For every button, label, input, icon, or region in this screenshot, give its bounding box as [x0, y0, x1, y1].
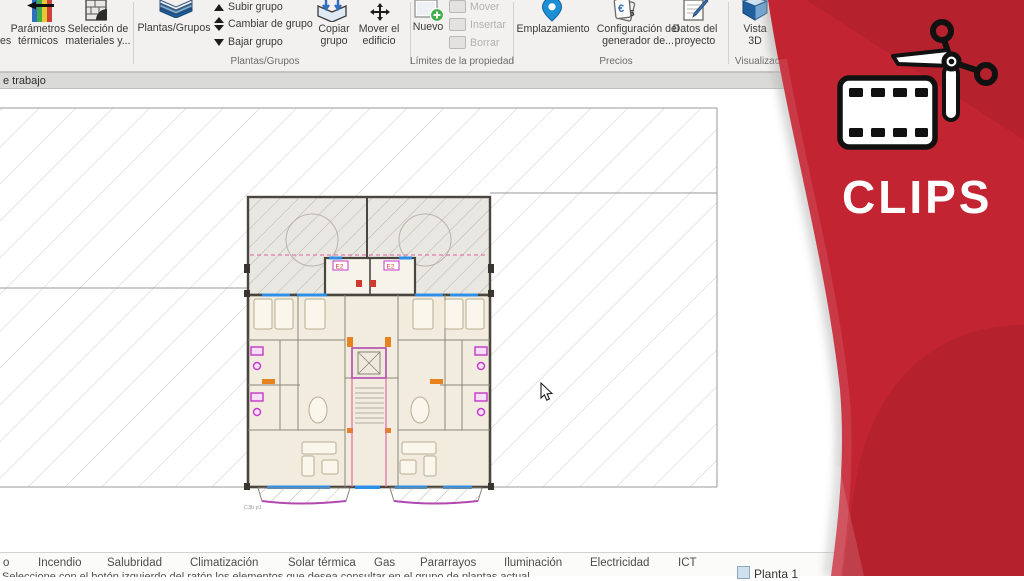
- copiar-grupo-label: Copiar grupo: [314, 24, 354, 47]
- ribbon-separator: [728, 2, 729, 64]
- entry-label-right: E2: [387, 264, 395, 271]
- floors-groups-icon: [158, 0, 194, 18]
- price-tags-icon: € 5: [608, 0, 644, 22]
- tab-electricidad[interactable]: Electricidad: [590, 557, 649, 569]
- brand-title: CLIPS: [842, 171, 992, 223]
- svg-text:5: 5: [630, 9, 635, 18]
- tab-cut[interactable]: o: [3, 557, 9, 569]
- tab-pararrayos[interactable]: Pararrayos: [420, 557, 476, 569]
- group-caption-precios: Precios: [588, 56, 644, 67]
- cambiar-grupo-label: Cambiar de grupo: [228, 18, 313, 30]
- mover-edificio-label: Mover el edificio: [356, 24, 402, 47]
- nuevo-label: Nuevo: [408, 22, 448, 34]
- copy-group-icon: [316, 0, 348, 22]
- tab-solar-termica[interactable]: Solar térmica: [288, 557, 356, 569]
- delete-icon: [449, 36, 466, 49]
- borrar-label: Borrar: [470, 37, 499, 49]
- svg-text:€: €: [618, 3, 624, 15]
- insertar-label: Insertar: [470, 19, 506, 31]
- cambiar-grupo-button[interactable]: Cambiar de grupo: [214, 17, 313, 31]
- subir-grupo-button[interactable]: Subir grupo: [214, 1, 283, 13]
- tab-incendio[interactable]: Incendio: [38, 557, 81, 569]
- group-caption-limites: Límites de la propiedad: [408, 56, 516, 67]
- bajar-grupo-label: Bajar grupo: [228, 36, 283, 48]
- subir-grupo-label: Subir grupo: [228, 1, 283, 13]
- tab-climatizacion[interactable]: Climatización: [190, 557, 258, 569]
- borrar-button-disabled: Borrar: [449, 36, 499, 49]
- brand-overlay-panel: CLIPS: [730, 0, 1024, 576]
- seleccion-materiales-label: Selección de materiales y...: [62, 24, 134, 47]
- up-triangle-icon: [214, 4, 224, 11]
- tab-ict[interactable]: ICT: [678, 557, 697, 569]
- mover-limite-button-disabled: Mover: [449, 0, 499, 13]
- balconies: [258, 488, 482, 504]
- up-down-triangles-icon: [214, 17, 224, 31]
- entry-vestibule: E2 E2: [325, 257, 415, 296]
- move-limit-icon: [449, 0, 466, 13]
- status-hint-clipped: Seleccione con el botón izquierdo del ra…: [2, 571, 702, 577]
- group-caption-plantas: Plantas/Grupos: [220, 56, 310, 67]
- bajar-grupo-button[interactable]: Bajar grupo: [214, 36, 283, 48]
- parametros-termicos-label: Parámetros térmicos: [8, 24, 68, 47]
- tab-iluminacion[interactable]: Iluminación: [504, 557, 562, 569]
- mover-limite-label: Mover: [470, 1, 499, 13]
- entry-label-left: E2: [336, 264, 344, 271]
- thermal-parameters-icon: [26, 0, 56, 22]
- workspace-title: e trabajo: [3, 75, 46, 87]
- plantas-grupos-label: Plantas/Grupos: [134, 23, 214, 35]
- building-floor-plan[interactable]: E2 E2: [244, 197, 494, 511]
- insertar-button-disabled: Insertar: [449, 18, 506, 31]
- emplazamiento-label: Emplazamiento: [512, 24, 594, 36]
- project-data-icon: [682, 0, 710, 22]
- plan-caption: C3b p1: [244, 505, 262, 511]
- move-building-icon: [369, 2, 391, 22]
- tab-gas[interactable]: Gas: [374, 557, 395, 569]
- insert-icon: [449, 18, 466, 31]
- materials-icon: [84, 0, 112, 22]
- location-pin-icon: [540, 0, 564, 22]
- down-triangle-icon: [214, 39, 224, 46]
- datos-proyecto-label: Datos del proyecto: [666, 24, 724, 47]
- new-icon: [413, 0, 445, 22]
- app-window: { "ribbon": { "cut_label": "es", "big_bu…: [0, 0, 1024, 576]
- tab-salubridad[interactable]: Salubridad: [107, 557, 162, 569]
- floor-plan-drawing[interactable]: E2 E2: [0, 89, 830, 552]
